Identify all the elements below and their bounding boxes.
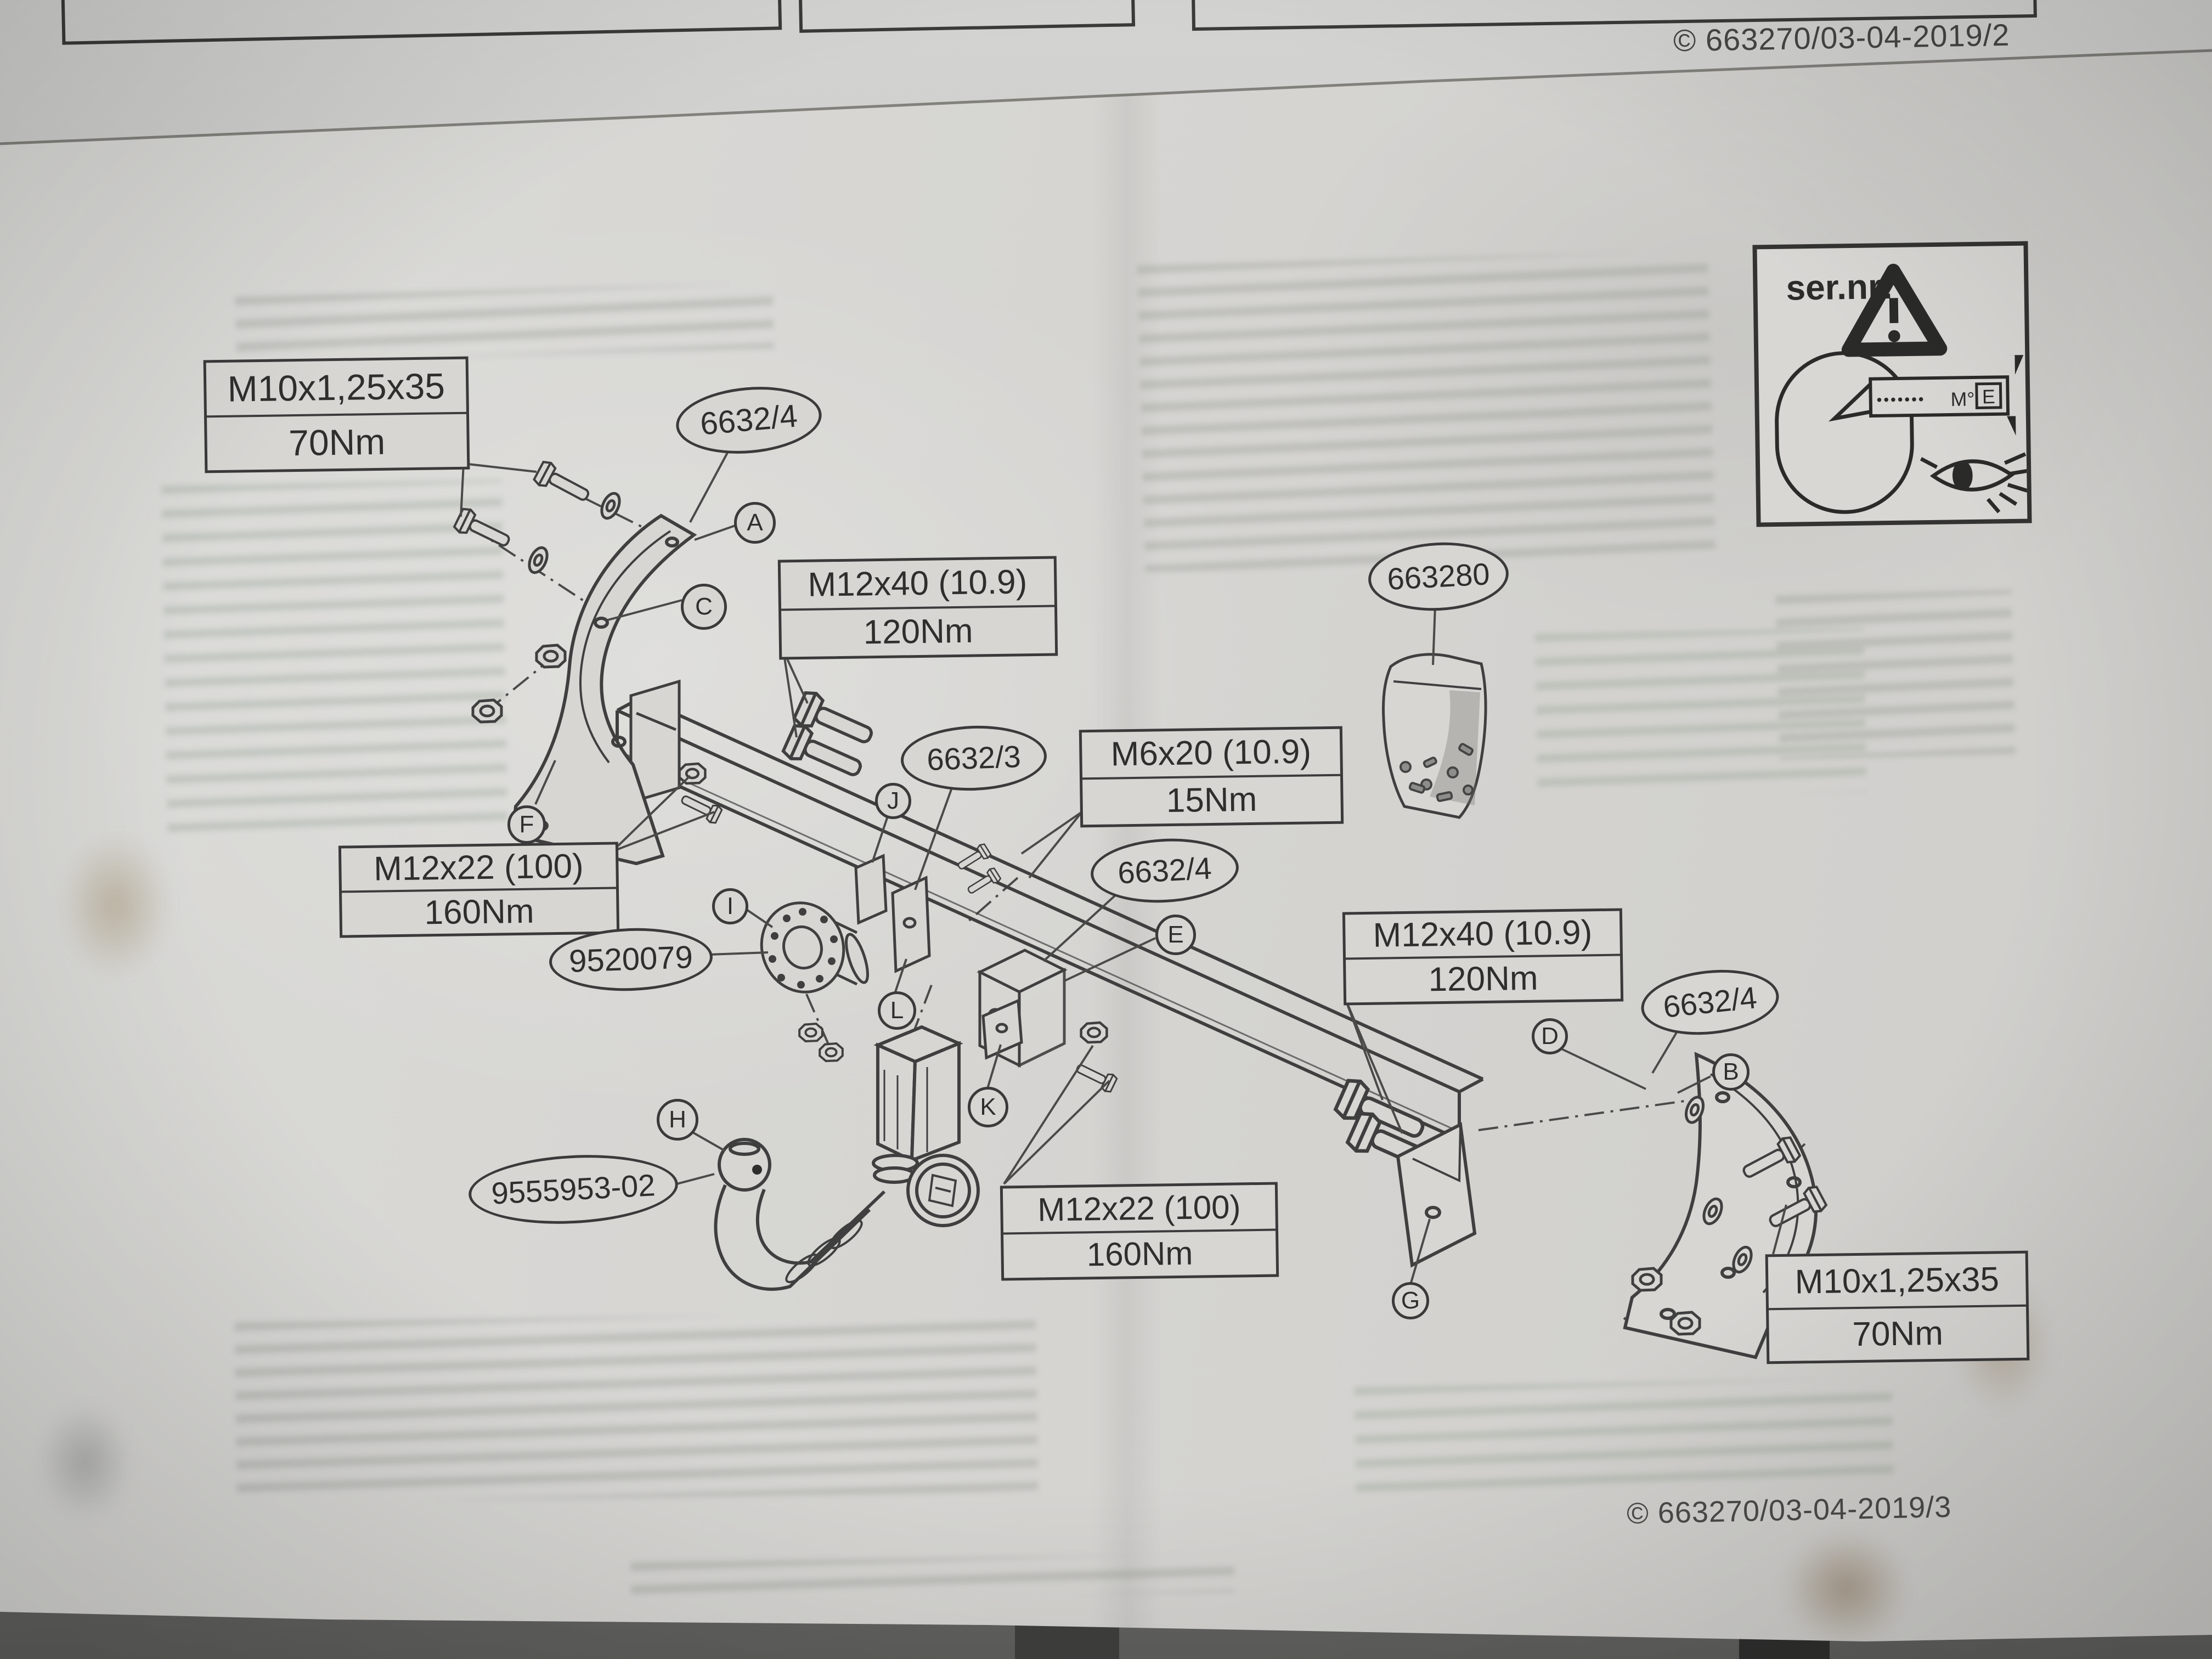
tag-mark: E xyxy=(1982,386,1995,408)
ghost-text xyxy=(161,480,507,837)
ref-circle-L: L xyxy=(878,991,916,1030)
ghost-text xyxy=(1775,589,2016,760)
divider xyxy=(1082,774,1340,780)
torque-callout-m10-top-left: M10x1,25x35 70Nm xyxy=(204,357,470,473)
torque-value: 120Nm xyxy=(863,614,973,650)
previous-sheet-box xyxy=(798,0,1135,33)
ref-letter: L xyxy=(890,998,904,1023)
sernr-icons: ••••••• M° E xyxy=(1757,246,2028,523)
torque-value: 160Nm xyxy=(1086,1237,1193,1272)
divider xyxy=(1769,1305,2026,1311)
warning-triangle-icon xyxy=(1848,270,1940,349)
ref-letter: F xyxy=(520,812,534,837)
ref-letter: C xyxy=(695,595,713,619)
ref-circle-K: K xyxy=(968,1087,1008,1127)
tag-code: M° xyxy=(1950,388,1975,411)
bolt-spec: M10x1,25x35 xyxy=(1795,1262,1999,1299)
torque-value: 70Nm xyxy=(289,424,386,461)
previous-page-copyright: © 663270/03-04-2019/2 xyxy=(1673,17,2010,59)
torque-value: 70Nm xyxy=(1852,1316,1943,1351)
torque-callout-m10-bottom-right: M10x1,25x35 70Nm xyxy=(1765,1251,2030,1364)
torque-callout-m12x22-left: M12x22 (100) 160Nm xyxy=(338,842,619,938)
divider xyxy=(1346,954,1620,960)
tag-dots: ••••••• xyxy=(1876,391,1925,408)
ref-circle-H: H xyxy=(657,1099,698,1141)
serial-number-panel: ser.nr: ••••••• M° E xyxy=(1752,241,2032,527)
bolt-spec: M12x22 (100) xyxy=(374,849,584,886)
bolt-spec: M12x22 (100) xyxy=(1037,1190,1241,1226)
ref-letter: A xyxy=(747,511,763,535)
ref-circle-J: J xyxy=(875,783,911,819)
torque-callout-m12x40-left: M12x40 (10.9) 120Nm xyxy=(778,556,1058,659)
ghost-text xyxy=(1137,250,1716,572)
ref-circle-C: C xyxy=(681,584,727,630)
page-copyright: © 663270/03-04-2019/3 xyxy=(1626,1490,1951,1531)
ref-letter: H xyxy=(669,1108,686,1132)
torque-value: 120Nm xyxy=(1428,962,1538,997)
ref-circle-B: B xyxy=(1712,1053,1750,1091)
ref-circle-G: G xyxy=(1392,1282,1429,1319)
part-number: 9520079 xyxy=(568,941,693,978)
ref-circle-D: D xyxy=(1532,1018,1568,1054)
torque-callout-m12x40-right: M12x40 (10.9) 120Nm xyxy=(1342,908,1623,1005)
paper-stain xyxy=(38,1404,132,1520)
paper-stain xyxy=(1783,1531,1909,1646)
bolt-spec: M6x20 (10.9) xyxy=(1110,735,1311,771)
ref-circle-I: I xyxy=(712,888,748,924)
ghost-text xyxy=(235,283,775,363)
photo-of-instruction-sheet: { "photo": { "prev_page_copyright": "© 6… xyxy=(0,0,2212,1659)
ref-letter: G xyxy=(1401,1289,1420,1313)
ref-letter: D xyxy=(1541,1024,1559,1048)
ref-letter: K xyxy=(980,1095,996,1119)
bolt-spec: M10x1,25x35 xyxy=(227,368,445,407)
torque-value: 160Nm xyxy=(424,894,534,930)
ref-circle-E: E xyxy=(1155,915,1196,955)
ref-letter: E xyxy=(1167,923,1183,947)
ghost-text xyxy=(1354,1378,1893,1497)
ref-letter: B xyxy=(1723,1060,1739,1084)
bolt-spec: M12x40 (10.9) xyxy=(808,565,1028,602)
bolt-spec: M12x40 (10.9) xyxy=(1373,916,1593,953)
ghost-text xyxy=(235,1311,1038,1503)
divider xyxy=(1003,1228,1276,1234)
part-number: 6632/3 xyxy=(926,741,1021,775)
ref-circle-F: F xyxy=(507,805,546,844)
part-number: 6632/4 xyxy=(1117,853,1212,889)
divider xyxy=(207,412,466,418)
part-number: 9555953-02 xyxy=(490,1170,656,1209)
part-number: 663280 xyxy=(1386,558,1491,595)
part-number: 6632/4 xyxy=(699,400,799,440)
torque-value: 15Nm xyxy=(1166,783,1257,818)
torque-callout-m6x20: M6x20 (10.9) 15Nm xyxy=(1079,726,1344,828)
ref-letter: I xyxy=(727,894,733,918)
divider xyxy=(781,605,1054,611)
part-number: 6632/4 xyxy=(1662,982,1758,1023)
ref-circle-A: A xyxy=(734,502,776,544)
torque-callout-m12x22-bottom: M12x22 (100) 160Nm xyxy=(1000,1182,1279,1280)
divider xyxy=(342,887,616,893)
previous-sheet-box xyxy=(61,0,782,45)
eye-icon xyxy=(1921,454,2027,513)
ref-letter: J xyxy=(887,789,899,813)
paper-stain xyxy=(60,834,170,977)
